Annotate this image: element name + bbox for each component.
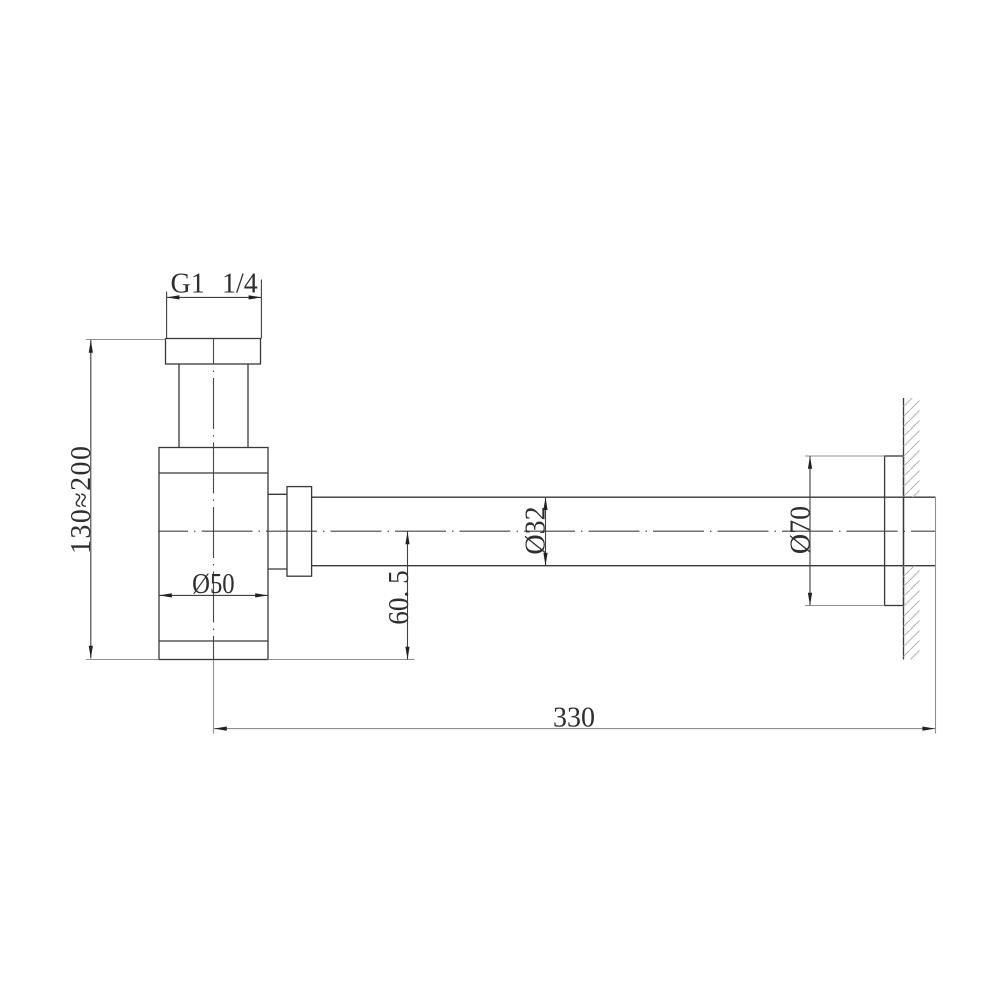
- svg-text:Ø70: Ø70: [786, 506, 817, 554]
- svg-text:G1: G1: [171, 269, 205, 300]
- svg-text:Ø50: Ø50: [192, 569, 235, 600]
- svg-text:130≈200: 130≈200: [66, 446, 97, 554]
- svg-text:1/4: 1/4: [222, 269, 258, 300]
- svg-text:330: 330: [553, 702, 595, 733]
- svg-text:60. 5: 60. 5: [384, 570, 415, 625]
- svg-text:Ø32: Ø32: [521, 506, 552, 554]
